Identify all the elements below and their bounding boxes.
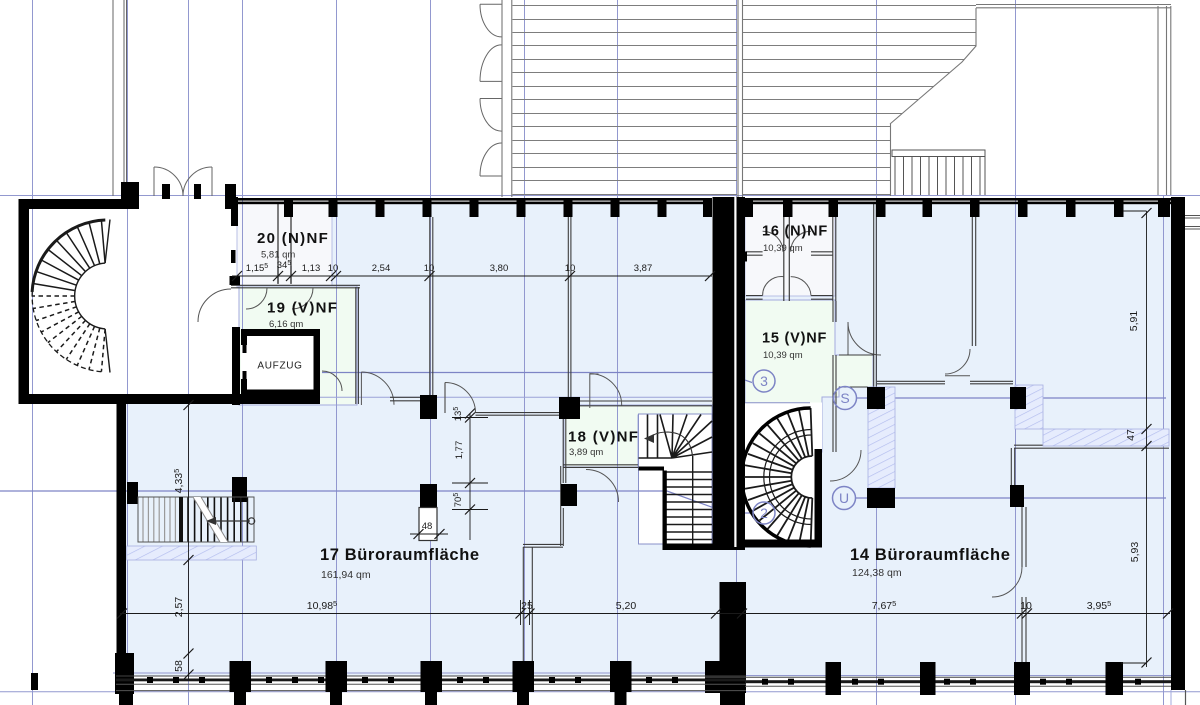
svg-text:10,39 qm: 10,39 qm — [763, 243, 803, 254]
svg-text:58: 58 — [173, 660, 185, 672]
svg-text:5,81 qm: 5,81 qm — [261, 250, 295, 261]
svg-text:S: S — [840, 390, 849, 406]
svg-text:20 (N)NF: 20 (N)NF — [257, 230, 329, 247]
svg-text:5,91: 5,91 — [1128, 311, 1140, 332]
svg-text:3: 3 — [760, 373, 768, 389]
svg-text:10,985: 10,985 — [307, 599, 337, 612]
svg-text:47: 47 — [1125, 429, 1137, 441]
svg-text:3,80: 3,80 — [490, 263, 509, 274]
svg-text:17 Büroraumfläche: 17 Büroraumfläche — [320, 546, 480, 564]
svg-text:2,57: 2,57 — [173, 597, 185, 618]
svg-text:5,20: 5,20 — [616, 600, 637, 612]
svg-text:25: 25 — [521, 600, 533, 612]
svg-text:15 (V)NF: 15 (V)NF — [762, 331, 827, 347]
svg-text:48: 48 — [422, 521, 433, 532]
svg-text:10: 10 — [1020, 600, 1032, 612]
svg-text:3,89 qm: 3,89 qm — [569, 447, 603, 458]
svg-text:16 (N)NF: 16 (N)NF — [762, 224, 828, 240]
svg-text:1,77: 1,77 — [454, 441, 465, 460]
svg-text:124,38 qm: 124,38 qm — [852, 567, 902, 579]
svg-text:161,94 qm: 161,94 qm — [321, 569, 371, 581]
svg-text:10: 10 — [565, 263, 576, 274]
svg-text:5,93: 5,93 — [1129, 542, 1141, 563]
svg-text:3,87: 3,87 — [634, 263, 653, 274]
svg-text:10: 10 — [328, 263, 339, 274]
svg-text:AUFZUG: AUFZUG — [257, 361, 302, 372]
svg-text:2: 2 — [760, 505, 768, 521]
svg-text:1,13: 1,13 — [302, 263, 321, 274]
svg-text:19 (V)NF: 19 (V)NF — [267, 300, 338, 317]
svg-text:18 (V)NF: 18 (V)NF — [568, 429, 639, 446]
svg-text:10,39 qm: 10,39 qm — [763, 350, 803, 361]
svg-text:2,54: 2,54 — [372, 263, 391, 274]
svg-text:U: U — [839, 490, 849, 506]
svg-text:6,16 qm: 6,16 qm — [269, 319, 303, 330]
svg-text:10: 10 — [424, 263, 435, 274]
svg-text:14 Büroraumfläche: 14 Büroraumfläche — [850, 546, 1011, 564]
